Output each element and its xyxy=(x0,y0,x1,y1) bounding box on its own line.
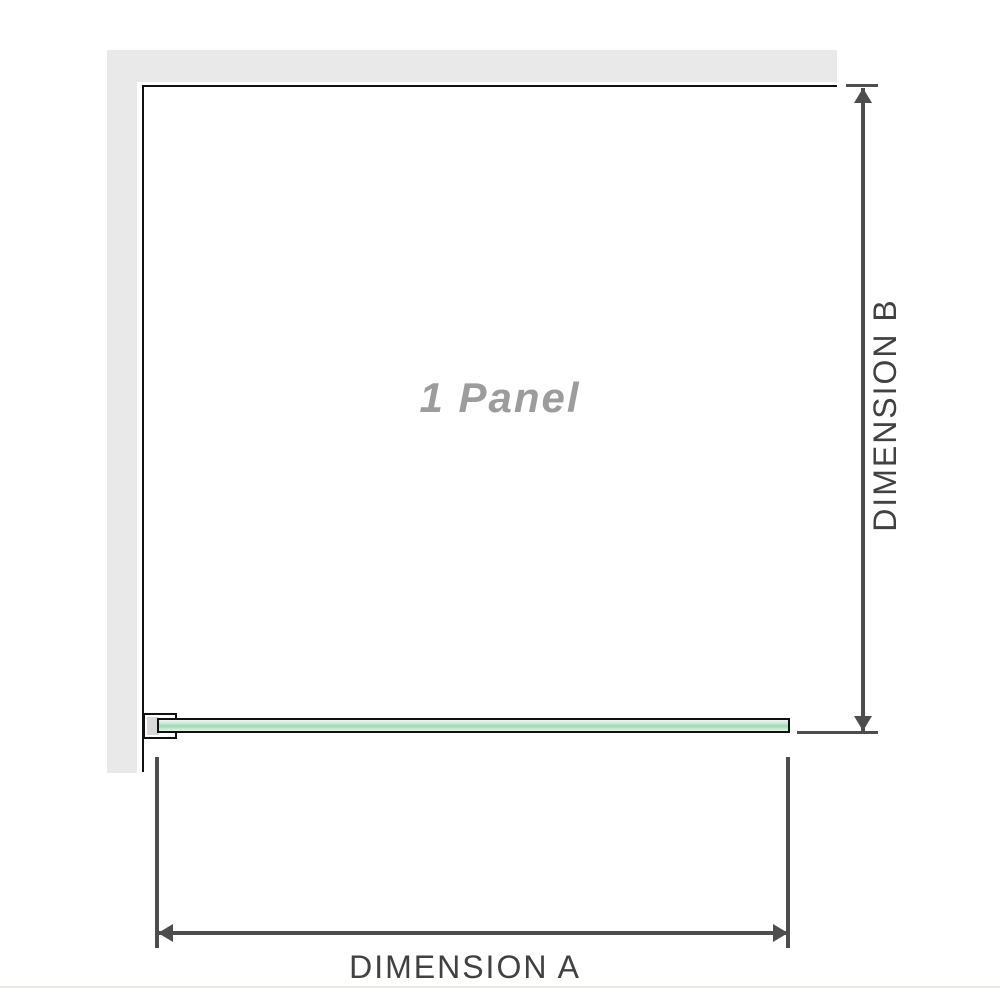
glass-panel xyxy=(157,718,790,733)
dimension-a-label: DIMENSION A xyxy=(315,949,615,986)
dimension-b-arrow-down-icon xyxy=(854,716,872,731)
wall-top xyxy=(107,50,837,82)
panel-count-label: 1 Panel xyxy=(300,374,700,422)
dimension-a-line xyxy=(158,931,788,935)
dimension-b-line xyxy=(861,88,865,731)
wall-inner-edge-top xyxy=(142,85,837,87)
bottom-divider xyxy=(0,986,1000,988)
dimension-a-arrow-right-icon xyxy=(773,924,788,942)
dimension-a-arrow-left-icon xyxy=(158,924,173,942)
dimension-diagram: 1 Panel DIMENSION B DIMENSION A xyxy=(0,0,1000,1000)
dimension-b-tick-bottom xyxy=(797,731,878,734)
dimension-b-tick-top xyxy=(846,84,878,87)
wall-left xyxy=(107,50,137,773)
dimension-b-arrow-up-icon xyxy=(854,88,872,103)
dimension-b-label: DIMENSION B xyxy=(868,265,902,565)
wall-inner-edge-left xyxy=(142,85,144,772)
dimension-a-extension-right xyxy=(786,757,790,948)
dimension-a-extension-left xyxy=(155,757,159,948)
